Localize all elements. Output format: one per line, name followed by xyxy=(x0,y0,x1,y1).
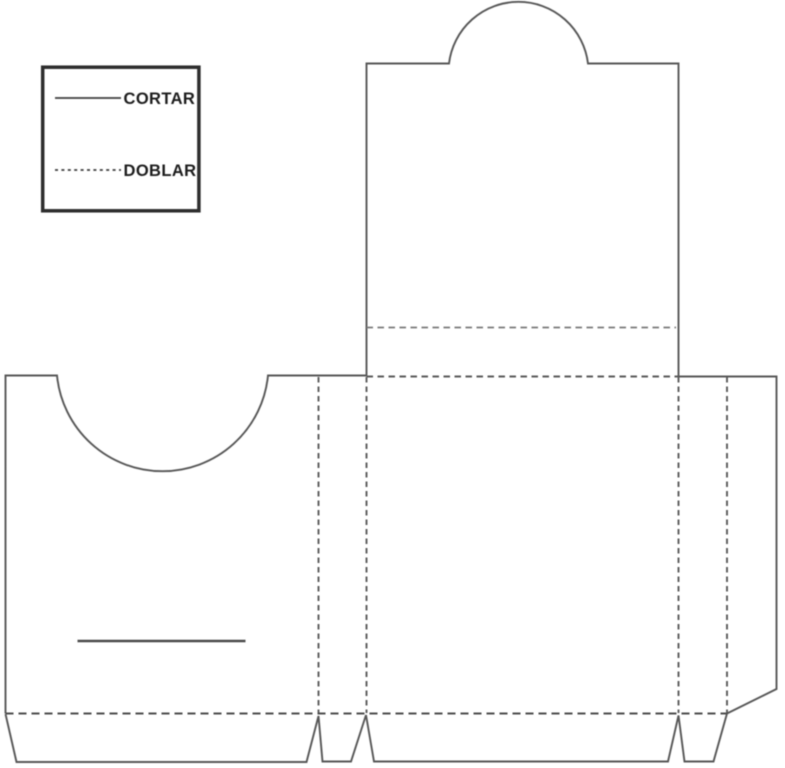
svg-text:DOBLAR: DOBLAR xyxy=(124,162,197,180)
svg-text:CORTAR: CORTAR xyxy=(124,90,196,108)
